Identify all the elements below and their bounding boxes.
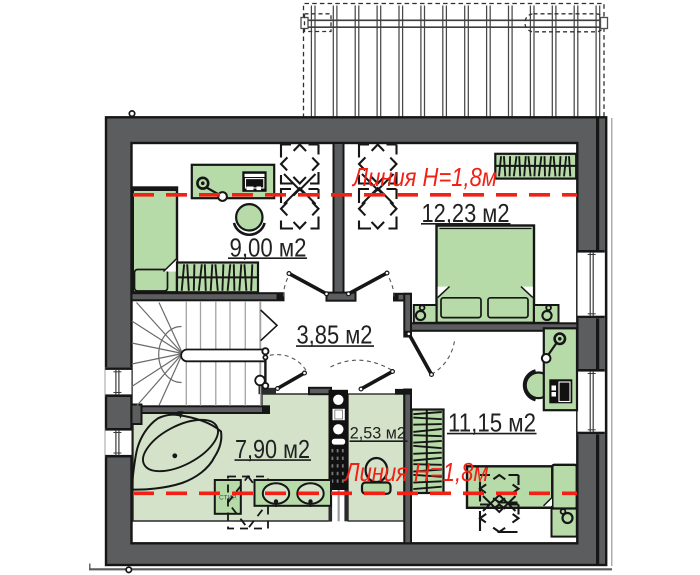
svg-text:2,53 м2: 2,53 м2 <box>350 424 406 443</box>
svg-text:Линия Н=1,8м: Линия Н=1,8м <box>343 457 489 487</box>
svg-text:3,85 м2: 3,85 м2 <box>297 320 373 350</box>
svg-text:Линия Н=1,8м: Линия Н=1,8м <box>351 162 497 192</box>
